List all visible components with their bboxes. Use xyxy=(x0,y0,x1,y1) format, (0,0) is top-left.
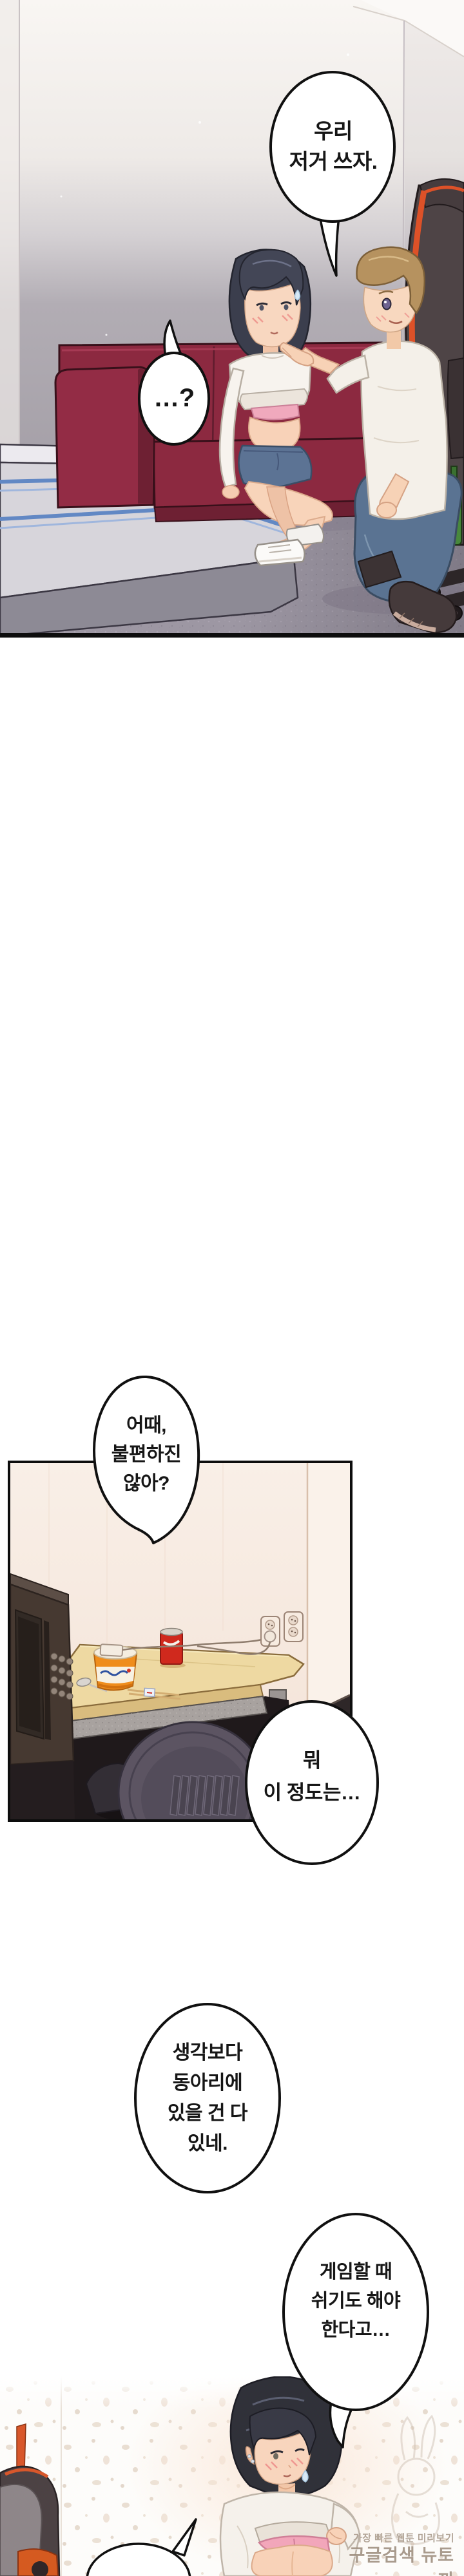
cola-can xyxy=(160,1629,186,1669)
plug xyxy=(265,1631,276,1642)
bubble-2-text: …? xyxy=(139,384,209,412)
microwave xyxy=(10,1574,75,1819)
panel-border-bottom xyxy=(0,633,464,638)
bubble-4-text: 뭐 이 정도는… xyxy=(247,1745,376,1809)
bubble-1-text: 우리 저거 쓰자. xyxy=(271,116,395,176)
webtoon-page: 우리 저거 쓰자. …? 어때, 불편하진 않아? 뭐 이 정도는… 생각보다 … xyxy=(0,0,464,2576)
bubble-6-text: 게임할 때 쉬기도 해야 한다고… xyxy=(287,2258,424,2345)
bubble-3-text: 어때, 불편하진 않아? xyxy=(85,1411,208,1498)
couch-room-panel xyxy=(0,0,464,638)
bubble-5-text: 생각보다 동아리에 있을 건 다 있네. xyxy=(143,2038,272,2159)
watermark-line-2: 구글검색 뉴토끼 xyxy=(342,2541,454,2576)
